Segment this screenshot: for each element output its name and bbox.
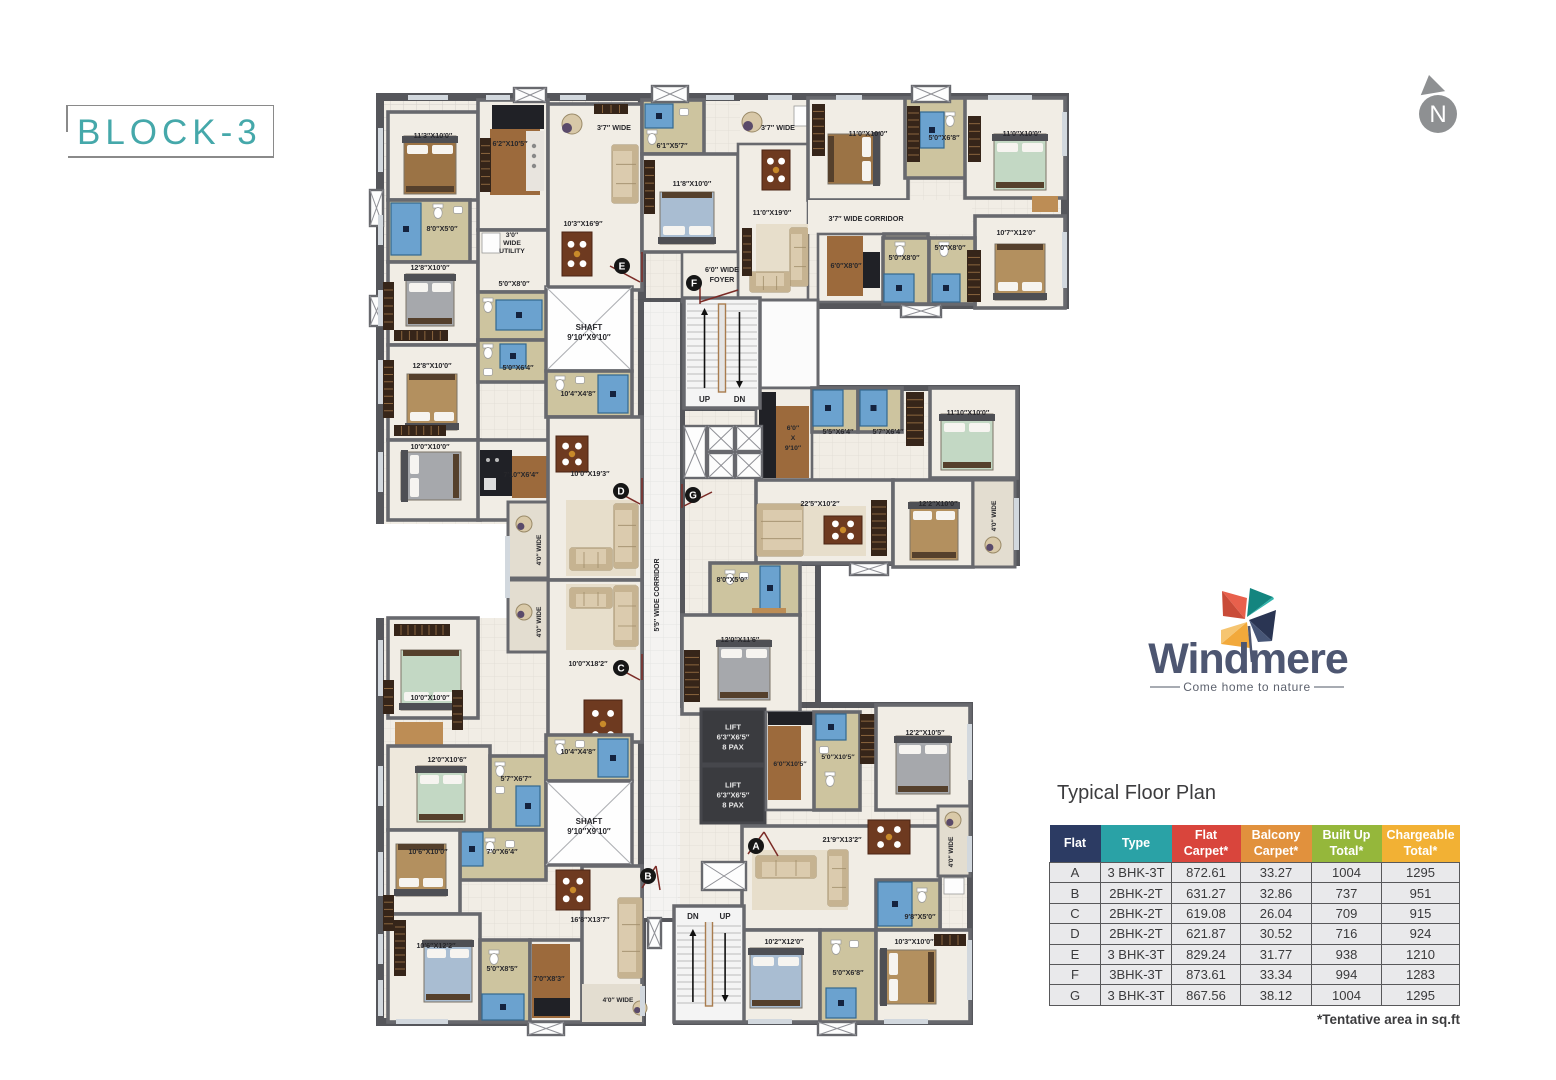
svg-text:6′0″X10′5″: 6′0″X10′5″	[773, 761, 807, 768]
svg-text:D: D	[617, 487, 624, 498]
svg-text:5′0″X8′0″: 5′0″X8′0″	[498, 279, 530, 288]
svg-text:4′0″ WIDE: 4′0″ WIDE	[603, 997, 634, 1004]
svg-text:10′0″X18′2″: 10′0″X18′2″	[568, 659, 608, 668]
svg-text:16′8″X13′7″: 16′8″X13′7″	[570, 915, 610, 924]
svg-text:UTILITY: UTILITY	[499, 248, 525, 255]
svg-text:5′0″X6′8″: 5′0″X6′8″	[832, 968, 864, 977]
svg-text:5′7″X6′7″: 5′7″X6′7″	[500, 774, 532, 783]
svg-text:9′10″X9′10″: 9′10″X9′10″	[567, 827, 611, 836]
svg-text:11′0″X10′0″: 11′0″X10′0″	[1003, 129, 1042, 138]
svg-text:C: C	[617, 664, 624, 675]
svg-text:12′8″X10′0″: 12′8″X10′0″	[410, 263, 450, 272]
svg-text:FOYER: FOYER	[710, 275, 736, 284]
svg-text:8′0″X5′0″: 8′0″X5′0″	[426, 224, 458, 233]
svg-text:10′6″X10′0″: 10′6″X10′0″	[408, 847, 448, 856]
svg-text:5′0″X8′5″: 5′0″X8′5″	[486, 964, 518, 973]
svg-text:9′10″: 9′10″	[785, 445, 802, 452]
svg-text:12′2″X10′0″: 12′2″X10′0″	[918, 499, 958, 508]
svg-text:10′0″X19′3″: 10′0″X19′3″	[570, 469, 610, 478]
svg-text:4′0″ WIDE: 4′0″ WIDE	[536, 534, 543, 565]
svg-text:10′3″X10′0″: 10′3″X10′0″	[894, 937, 934, 946]
svg-text:5′7″X6′4″: 5′7″X6′4″	[872, 427, 904, 436]
svg-text:11′3″X10′0″: 11′3″X10′0″	[414, 131, 453, 140]
svg-text:5′0″X6′8″: 5′0″X6′8″	[928, 133, 960, 142]
svg-text:B: B	[644, 872, 651, 883]
svg-text:10′2″X12′0″: 10′2″X12′0″	[764, 937, 804, 946]
svg-text:12′0″X10′6″: 12′0″X10′6″	[427, 755, 467, 764]
svg-text:6′3″X6′5″: 6′3″X6′5″	[717, 733, 750, 742]
svg-text:LIFT: LIFT	[725, 723, 741, 732]
svg-text:8 PAX: 8 PAX	[722, 743, 743, 752]
svg-text:11′0″X19′0″: 11′0″X19′0″	[753, 208, 792, 217]
svg-text:G: G	[689, 491, 697, 502]
svg-text:12′8″X10′0″: 12′8″X10′0″	[412, 361, 452, 370]
svg-text:WIDE: WIDE	[503, 240, 521, 247]
svg-text:8′0″X5′0″: 8′0″X5′0″	[716, 575, 748, 584]
svg-text:5′5″X6′4″: 5′5″X6′4″	[822, 427, 854, 436]
svg-text:10′3″X16′9″: 10′3″X16′9″	[563, 219, 603, 228]
svg-text:5′0″X8′0″: 5′0″X8′0″	[888, 253, 920, 262]
svg-text:UP: UP	[699, 395, 711, 404]
svg-text:3′7″ WIDE CORRIDOR: 3′7″ WIDE CORRIDOR	[828, 214, 904, 223]
svg-text:6′2″X10′5″: 6′2″X10′5″	[492, 139, 528, 148]
svg-text:Come home to nature: Come home to nature	[1183, 680, 1310, 694]
svg-text:6′3″X6′5″: 6′3″X6′5″	[717, 791, 750, 800]
svg-text:Windmere: Windmere	[1148, 635, 1348, 683]
svg-text:F: F	[691, 279, 697, 290]
svg-text:6′0″: 6′0″	[787, 425, 800, 432]
svg-text:SHAFT: SHAFT	[576, 323, 603, 332]
svg-text:10′4″X4′8″: 10′4″X4′8″	[560, 389, 596, 398]
svg-text:SHAFT: SHAFT	[576, 817, 603, 826]
svg-text:7′10″X6′4″: 7′10″X6′4″	[503, 470, 539, 479]
svg-text:11′10″X10′0″: 11′10″X10′0″	[947, 408, 990, 417]
svg-text:E: E	[619, 262, 626, 273]
svg-text:X: X	[791, 435, 796, 442]
svg-text:11′8″X10′0″: 11′8″X10′0″	[673, 179, 712, 188]
svg-text:DN: DN	[734, 395, 746, 404]
svg-text:6′0″X8′0″: 6′0″X8′0″	[830, 261, 862, 270]
svg-text:10′0″X10′0″: 10′0″X10′0″	[410, 442, 450, 451]
svg-text:12′0″X11′6″: 12′0″X11′6″	[721, 635, 760, 644]
svg-text:3′7″ WIDE: 3′7″ WIDE	[597, 123, 631, 132]
svg-text:LIFT: LIFT	[725, 781, 741, 790]
svg-text:5′5″ WIDE CORRIDOR: 5′5″ WIDE CORRIDOR	[654, 558, 661, 631]
svg-text:7′0″X6′4″: 7′0″X6′4″	[486, 847, 518, 856]
svg-text:3′0″: 3′0″	[506, 232, 519, 239]
svg-text:DN: DN	[687, 912, 699, 921]
svg-text:10′7″X12′0″: 10′7″X12′0″	[996, 228, 1036, 237]
svg-text:11′0″X10′0″: 11′0″X10′0″	[849, 129, 888, 138]
svg-text:10′0″X10′0″: 10′0″X10′0″	[410, 693, 450, 702]
svg-text:5′0″X6′4″: 5′0″X6′4″	[502, 363, 534, 372]
svg-text:4′0″ WIDE: 4′0″ WIDE	[536, 606, 543, 637]
svg-text:4′0″ WIDE: 4′0″ WIDE	[991, 500, 998, 531]
svg-text:4′0″ WIDE: 4′0″ WIDE	[948, 836, 955, 867]
svg-text:7′0″X8′3″: 7′0″X8′3″	[533, 974, 565, 983]
svg-text:9′8″X5′0″: 9′8″X5′0″	[904, 912, 936, 921]
svg-text:10′4″X4′8″: 10′4″X4′8″	[560, 747, 596, 756]
svg-text:22′5″X10′2″: 22′5″X10′2″	[800, 499, 840, 508]
svg-text:8 PAX: 8 PAX	[722, 801, 743, 810]
svg-text:6′1″X5′7″: 6′1″X5′7″	[656, 141, 688, 150]
svg-text:6′0″ WIDE: 6′0″ WIDE	[705, 265, 739, 274]
svg-text:21′9″X13′2″: 21′9″X13′2″	[822, 835, 862, 844]
svg-text:3′7″ WIDE: 3′7″ WIDE	[761, 123, 795, 132]
svg-text:A: A	[752, 842, 759, 853]
svg-text:5′0″X10′5″: 5′0″X10′5″	[821, 754, 855, 761]
svg-text:N: N	[1429, 101, 1446, 128]
svg-text:12′2″X10′5″: 12′2″X10′5″	[905, 728, 945, 737]
svg-text:9′10″X9′10″: 9′10″X9′10″	[567, 333, 611, 342]
svg-text:5′0″X8′0″: 5′0″X8′0″	[934, 243, 966, 252]
svg-text:UP: UP	[720, 912, 732, 921]
svg-text:10′6″X12′2″: 10′6″X12′2″	[416, 941, 456, 950]
